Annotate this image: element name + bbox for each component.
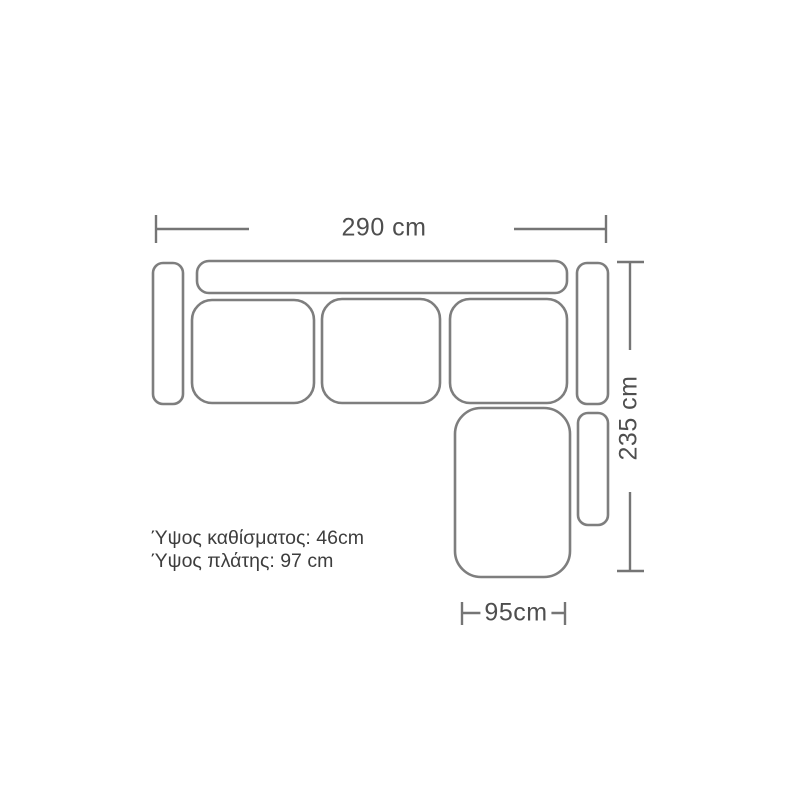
seat-height-note: Ύψος καθίσματος: 46cm — [151, 527, 364, 550]
chaise-seat-outline — [455, 408, 570, 577]
seat-cushion-2-outline — [322, 299, 440, 403]
seat-cushion-1-outline — [192, 300, 314, 403]
seat-cushion-3-outline — [450, 299, 567, 403]
depth-dimension-label: 235 cm — [617, 372, 642, 465]
right-armrest-outline — [578, 413, 608, 525]
chaise-width-dimension-label: 95cm — [480, 601, 551, 626]
backrest-outline — [197, 261, 567, 293]
left-armrest-outline — [153, 263, 183, 404]
right-backrest-outline — [577, 263, 608, 404]
back-height-note: Ύψος πλάτης: 97 cm — [151, 550, 364, 573]
sofa-floorplan-drawing — [0, 0, 800, 800]
height-notes: Ύψος καθίσματος: 46cm Ύψος πλάτης: 97 cm — [151, 527, 364, 573]
sofa-floorplan-diagram: 290 cm 235 cm 95cm Ύψος καθίσματος: 46cm… — [0, 0, 800, 800]
width-dimension-label: 290 cm — [338, 216, 431, 241]
